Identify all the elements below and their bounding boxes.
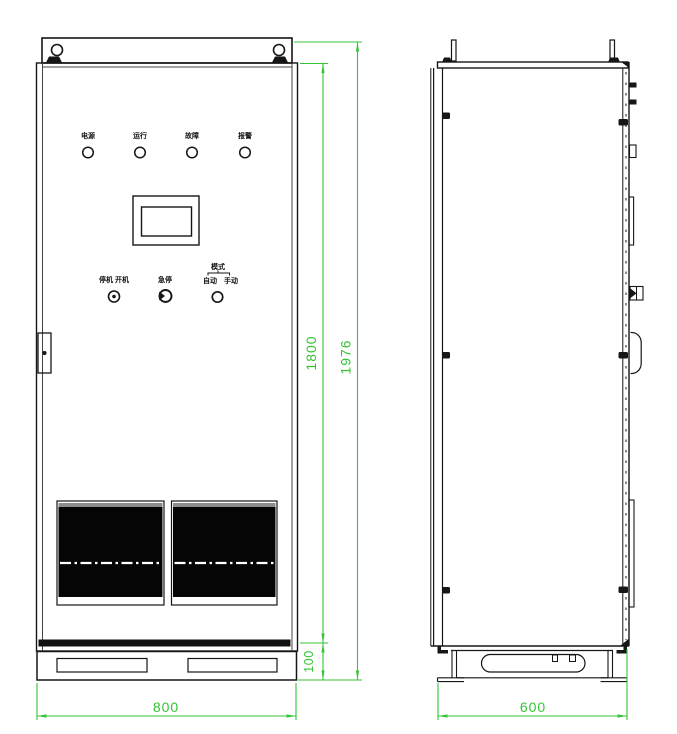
indicator-lamp-icon — [187, 147, 198, 158]
indicator-label: 电源 — [81, 131, 95, 140]
side-cabinet-body — [431, 62, 629, 646]
indicator-label: 报警 — [238, 131, 252, 140]
dimension-800: 800 — [37, 683, 296, 720]
indicator-label: 运行 — [133, 131, 147, 140]
base-slot — [57, 659, 147, 673]
side-base — [438, 646, 628, 682]
side-top-plate — [438, 62, 629, 68]
dimension-100-label: 100 — [302, 650, 316, 672]
front-view: 电源 运行 故障 报警 停机 开机 急停 — [37, 38, 298, 680]
rear-bolt — [619, 352, 629, 359]
door-handle — [631, 333, 642, 374]
dimension-800-label: 800 — [153, 699, 179, 715]
lifting-eye-icon — [274, 45, 285, 56]
side-base-feet — [438, 646, 628, 654]
indicator-lamp-icon — [135, 147, 146, 158]
dimension-600-label: 600 — [520, 699, 546, 715]
side-view — [431, 40, 643, 682]
indicator-lamp-icon — [83, 147, 94, 158]
indicator-lights: 电源 运行 故障 报警 — [81, 131, 252, 158]
lifting-eye-icon — [52, 45, 63, 56]
cabinet-technical-drawing: 电源 运行 故障 报警 停机 开机 急停 — [0, 0, 677, 734]
side-rear-edge-details — [619, 62, 644, 646]
vent-grille-right — [172, 501, 278, 605]
mode-selector-switch: 模式 自动 手动 — [203, 262, 238, 302]
dimension-1800: 1800 — [303, 64, 325, 644]
dimension-600: 600 — [438, 649, 627, 720]
dimension-1976-label: 1976 — [338, 339, 354, 374]
rear-stud — [630, 83, 637, 88]
estop-label: 急停 — [158, 275, 172, 284]
lifting-eye-foot — [272, 57, 288, 63]
front-top-plate — [42, 38, 292, 63]
dimension-100: 100 — [302, 643, 325, 680]
door-latch — [630, 287, 643, 301]
selector-knob-icon — [212, 292, 222, 302]
rear-clip — [630, 145, 637, 158]
power-switch-label: 停机 开机 — [99, 275, 129, 284]
indicator-lamp-icon — [240, 147, 251, 158]
side-front-edge-bolts — [442, 113, 450, 594]
indicator-label: 故障 — [185, 131, 199, 140]
slot-tab — [570, 655, 576, 662]
front-base — [37, 640, 297, 681]
vent-grille-left — [57, 501, 164, 605]
hmi-display — [133, 196, 199, 245]
slot-tab — [553, 655, 558, 662]
power-selector-switch: 停机 开机 — [99, 275, 129, 302]
dimension-1800-label: 1800 — [303, 335, 319, 370]
rear-bolt — [619, 119, 629, 126]
side-lifting-tabs — [442, 40, 620, 63]
mode-option-left: 自动 — [203, 276, 217, 285]
dimension-annotations: 1800 1976 100 800 — [37, 42, 627, 720]
rear-bolt — [619, 587, 629, 594]
mode-label: 模式 — [211, 262, 225, 271]
base-slot — [188, 659, 277, 673]
side-base-flanges — [438, 678, 628, 682]
lifting-eye-foot — [46, 57, 62, 63]
emergency-stop-button: 急停 — [158, 275, 172, 302]
rear-stud — [630, 100, 637, 105]
door-hinge — [629, 500, 634, 607]
drawing-canvas: 电源 运行 故障 报警 停机 开机 急停 — [0, 0, 677, 734]
ventilation-grilles — [57, 501, 277, 605]
dimension-1976: 1976 — [338, 42, 360, 680]
door-lock — [38, 333, 51, 373]
front-controls: 停机 开机 急停 模式 自动 手动 — [99, 262, 238, 302]
mode-option-right: 手动 — [224, 276, 238, 285]
